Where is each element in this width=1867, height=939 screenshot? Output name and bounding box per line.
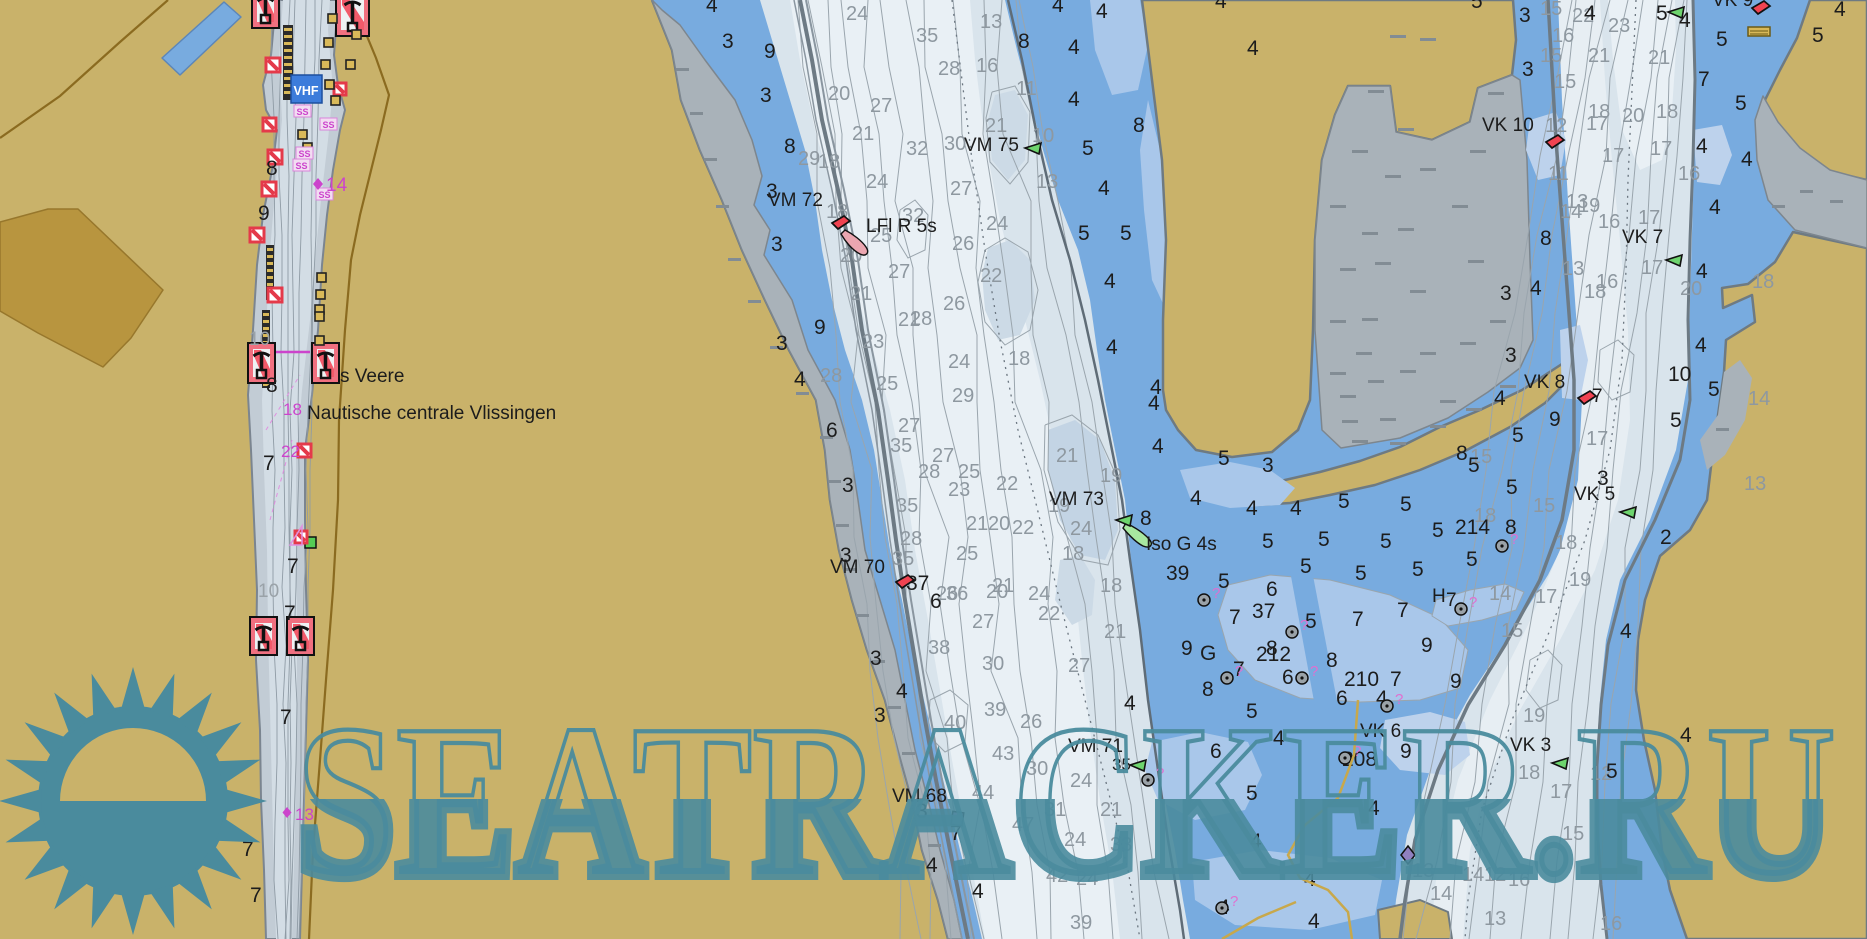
svg-text:5: 5 bbox=[1708, 378, 1720, 401]
svg-text:9: 9 bbox=[814, 316, 826, 339]
svg-text:30: 30 bbox=[982, 653, 1004, 675]
svg-text:15: 15 bbox=[1533, 495, 1555, 517]
svg-text:5: 5 bbox=[1471, 0, 1483, 13]
svg-text:8: 8 bbox=[266, 157, 278, 180]
svg-text:8: 8 bbox=[1140, 507, 1152, 530]
svg-text:4: 4 bbox=[1584, 2, 1596, 25]
svg-text:21: 21 bbox=[1056, 445, 1078, 467]
svg-text:26: 26 bbox=[943, 293, 965, 315]
svg-text:21: 21 bbox=[1648, 47, 1670, 69]
svg-text:17: 17 bbox=[1650, 138, 1672, 160]
svg-text:?: ? bbox=[1469, 594, 1477, 611]
svg-text:5: 5 bbox=[1512, 424, 1524, 447]
svg-text:27: 27 bbox=[950, 178, 972, 200]
svg-text:?: ? bbox=[1212, 585, 1220, 602]
svg-text:18: 18 bbox=[1555, 532, 1577, 554]
svg-text:4: 4 bbox=[1068, 88, 1080, 111]
svg-text:10: 10 bbox=[249, 329, 270, 350]
svg-text:5: 5 bbox=[1656, 2, 1668, 25]
svg-text:7: 7 bbox=[284, 602, 296, 625]
svg-text:212: 212 bbox=[1256, 643, 1291, 666]
svg-text:3: 3 bbox=[1519, 4, 1531, 27]
svg-text:10: 10 bbox=[258, 581, 279, 602]
svg-text:7: 7 bbox=[1397, 599, 1409, 622]
svg-text:9: 9 bbox=[1549, 408, 1561, 431]
svg-text:6: 6 bbox=[826, 419, 838, 442]
svg-text:8: 8 bbox=[1133, 114, 1145, 137]
svg-text:13: 13 bbox=[1036, 171, 1058, 193]
svg-text:20: 20 bbox=[828, 83, 850, 105]
svg-text:23: 23 bbox=[1608, 15, 1630, 37]
svg-text:22: 22 bbox=[1012, 517, 1034, 539]
svg-text:5: 5 bbox=[1400, 493, 1412, 516]
svg-text:4: 4 bbox=[1494, 387, 1506, 410]
svg-text:25: 25 bbox=[956, 543, 978, 565]
svg-text:36: 36 bbox=[946, 583, 968, 605]
svg-text:4: 4 bbox=[1247, 37, 1259, 60]
svg-text:5: 5 bbox=[1218, 447, 1230, 470]
svg-text:3: 3 bbox=[1500, 282, 1512, 305]
svg-text:17: 17 bbox=[1641, 257, 1663, 279]
svg-text:3: 3 bbox=[1522, 58, 1534, 81]
svg-text:4: 4 bbox=[1696, 135, 1708, 158]
svg-text:32: 32 bbox=[906, 138, 928, 160]
svg-text:?: ? bbox=[1310, 663, 1318, 680]
svg-text:5: 5 bbox=[1120, 222, 1132, 245]
svg-text:3: 3 bbox=[1262, 454, 1274, 477]
svg-text:10: 10 bbox=[1032, 125, 1054, 147]
svg-text:s Veere: s Veere bbox=[340, 366, 404, 387]
svg-text:7: 7 bbox=[1698, 68, 1710, 91]
svg-text:10: 10 bbox=[1668, 363, 1691, 386]
svg-text:VM 70: VM 70 bbox=[830, 557, 885, 578]
svg-text:5: 5 bbox=[1355, 562, 1367, 585]
svg-text:6: 6 bbox=[930, 590, 942, 613]
svg-text:4: 4 bbox=[1098, 177, 1110, 200]
svg-text:27: 27 bbox=[870, 95, 892, 117]
svg-text:5: 5 bbox=[1300, 555, 1312, 578]
svg-text:VHF: VHF bbox=[294, 84, 319, 98]
svg-text:3: 3 bbox=[776, 332, 788, 355]
svg-text:VM 73: VM 73 bbox=[1049, 489, 1104, 510]
svg-text:VM 75: VM 75 bbox=[964, 135, 1019, 156]
svg-text:21: 21 bbox=[992, 575, 1014, 597]
svg-text:22: 22 bbox=[281, 442, 300, 461]
svg-text:Nautische centrale Vlissingen: Nautische centrale Vlissingen bbox=[307, 403, 556, 424]
svg-text:5: 5 bbox=[1468, 454, 1480, 477]
svg-text:3: 3 bbox=[842, 474, 854, 497]
svg-text:12: 12 bbox=[1545, 115, 1567, 137]
svg-text:VK 9: VK 9 bbox=[1712, 0, 1753, 11]
svg-text:21: 21 bbox=[966, 513, 988, 535]
svg-text:?: ? bbox=[1510, 531, 1518, 548]
svg-text:14: 14 bbox=[1748, 388, 1770, 410]
svg-text:4: 4 bbox=[1068, 36, 1080, 59]
svg-text:14: 14 bbox=[326, 175, 348, 196]
svg-text:16: 16 bbox=[1552, 25, 1574, 47]
svg-text:18: 18 bbox=[1062, 543, 1084, 565]
svg-text:16: 16 bbox=[1678, 163, 1700, 185]
svg-text:28: 28 bbox=[938, 58, 960, 80]
svg-text:17: 17 bbox=[1535, 586, 1557, 608]
svg-text:VM 72: VM 72 bbox=[768, 190, 823, 211]
svg-text:VK 8: VK 8 bbox=[1524, 372, 1565, 393]
svg-text:VK 7: VK 7 bbox=[1622, 227, 1663, 248]
svg-text:19: 19 bbox=[1100, 465, 1122, 487]
svg-text:23: 23 bbox=[862, 331, 884, 353]
svg-text:22: 22 bbox=[1038, 603, 1060, 625]
svg-text:4: 4 bbox=[1696, 260, 1708, 283]
svg-text:4: 4 bbox=[1834, 0, 1846, 21]
svg-text:17: 17 bbox=[1638, 207, 1660, 229]
svg-text:18: 18 bbox=[283, 400, 302, 419]
svg-text:2: 2 bbox=[1660, 526, 1672, 549]
svg-text:7: 7 bbox=[1229, 606, 1241, 629]
svg-text:7: 7 bbox=[1352, 608, 1364, 631]
svg-text:SS: SS bbox=[322, 120, 334, 130]
svg-text:30: 30 bbox=[944, 133, 966, 155]
svg-text:9: 9 bbox=[258, 202, 270, 225]
svg-text:4: 4 bbox=[1530, 277, 1542, 300]
svg-text:35: 35 bbox=[916, 25, 938, 47]
svg-text:5: 5 bbox=[1262, 530, 1274, 553]
svg-text:5: 5 bbox=[1812, 24, 1824, 47]
svg-text:21: 21 bbox=[1104, 621, 1126, 643]
svg-text:5: 5 bbox=[1716, 28, 1728, 51]
svg-text:20: 20 bbox=[988, 513, 1010, 535]
svg-text:214: 214 bbox=[1455, 516, 1490, 539]
svg-text:28: 28 bbox=[918, 461, 940, 483]
svg-text:24: 24 bbox=[1070, 518, 1092, 540]
svg-text:24: 24 bbox=[1028, 583, 1050, 605]
svg-text:21: 21 bbox=[898, 309, 920, 331]
svg-text:5: 5 bbox=[1432, 519, 1444, 542]
svg-text:16: 16 bbox=[1598, 211, 1620, 233]
svg-text:G: G bbox=[1200, 642, 1216, 665]
svg-text:7: 7 bbox=[280, 706, 292, 729]
svg-text:24: 24 bbox=[846, 3, 868, 25]
svg-text:3: 3 bbox=[722, 30, 734, 53]
svg-text:17: 17 bbox=[1586, 428, 1608, 450]
svg-text:14: 14 bbox=[1489, 583, 1511, 605]
svg-text:24: 24 bbox=[986, 213, 1008, 235]
svg-text:18: 18 bbox=[1008, 348, 1030, 370]
svg-text:28: 28 bbox=[900, 528, 922, 550]
svg-text:39: 39 bbox=[1166, 562, 1189, 585]
svg-text:7: 7 bbox=[263, 452, 275, 475]
svg-text:35: 35 bbox=[892, 548, 914, 570]
svg-text:4: 4 bbox=[706, 0, 718, 17]
svg-text:29: 29 bbox=[952, 385, 974, 407]
svg-text:8: 8 bbox=[1456, 442, 1468, 465]
svg-text:9: 9 bbox=[1421, 634, 1433, 657]
svg-text:6: 6 bbox=[1266, 578, 1278, 601]
svg-text:21: 21 bbox=[1588, 45, 1610, 67]
svg-text:13: 13 bbox=[1562, 258, 1584, 280]
svg-text:22: 22 bbox=[980, 265, 1002, 287]
svg-text:26: 26 bbox=[952, 233, 974, 255]
svg-text:3: 3 bbox=[870, 647, 882, 670]
svg-text:SS: SS bbox=[295, 161, 307, 171]
svg-text:5: 5 bbox=[1380, 530, 1392, 553]
svg-text:16: 16 bbox=[976, 55, 998, 77]
svg-text:7: 7 bbox=[287, 555, 299, 578]
svg-text:7: 7 bbox=[1592, 386, 1603, 407]
svg-text:9: 9 bbox=[1181, 637, 1193, 660]
svg-text:15: 15 bbox=[1554, 71, 1576, 93]
svg-text:3: 3 bbox=[1505, 344, 1517, 367]
svg-text:15: 15 bbox=[1540, 45, 1562, 67]
svg-text:4: 4 bbox=[1709, 196, 1721, 219]
svg-text:8: 8 bbox=[1540, 227, 1552, 250]
svg-text:4: 4 bbox=[1741, 148, 1753, 171]
svg-text:27: 27 bbox=[898, 415, 920, 437]
svg-text:25: 25 bbox=[958, 461, 980, 483]
svg-text:4: 4 bbox=[1695, 334, 1707, 357]
svg-text:35: 35 bbox=[890, 435, 912, 457]
svg-text:7: 7 bbox=[250, 884, 262, 907]
svg-text:13: 13 bbox=[1744, 473, 1766, 495]
svg-text:27: 27 bbox=[1068, 655, 1090, 677]
svg-text:4: 4 bbox=[1246, 497, 1258, 520]
svg-text:24: 24 bbox=[948, 351, 970, 373]
svg-text:29: 29 bbox=[798, 148, 820, 170]
svg-text:4: 4 bbox=[1106, 336, 1118, 359]
svg-text:4: 4 bbox=[1215, 0, 1227, 13]
svg-text:27: 27 bbox=[972, 611, 994, 633]
svg-text:4: 4 bbox=[1096, 0, 1108, 23]
svg-text:15: 15 bbox=[1501, 620, 1523, 642]
svg-text:18: 18 bbox=[1656, 101, 1678, 123]
svg-text:8: 8 bbox=[1326, 649, 1338, 672]
svg-text:4: 4 bbox=[1190, 487, 1202, 510]
svg-text:8: 8 bbox=[1018, 30, 1030, 53]
svg-text:37: 37 bbox=[1252, 600, 1275, 623]
svg-text:4: 4 bbox=[1620, 620, 1632, 643]
svg-text:21: 21 bbox=[852, 123, 874, 145]
svg-text:4: 4 bbox=[1052, 0, 1064, 17]
svg-text:18: 18 bbox=[818, 151, 840, 173]
svg-text:17: 17 bbox=[1586, 113, 1608, 135]
svg-text:20: 20 bbox=[1622, 105, 1644, 127]
svg-text:VK 10: VK 10 bbox=[1482, 115, 1534, 136]
svg-text:17: 17 bbox=[1602, 145, 1624, 167]
svg-text:5: 5 bbox=[1506, 476, 1518, 499]
svg-text:19: 19 bbox=[1569, 569, 1591, 591]
svg-text:5: 5 bbox=[1078, 222, 1090, 245]
svg-text:SS: SS bbox=[296, 107, 308, 117]
svg-text:4: 4 bbox=[1152, 435, 1164, 458]
svg-text:5: 5 bbox=[1338, 490, 1350, 513]
svg-text:LFl R 5s: LFl R 5s bbox=[866, 216, 937, 237]
svg-text:24: 24 bbox=[866, 171, 888, 193]
svg-text:13: 13 bbox=[980, 11, 1002, 33]
svg-text:5: 5 bbox=[1318, 528, 1330, 551]
svg-text:9: 9 bbox=[764, 40, 776, 63]
svg-text:5: 5 bbox=[1670, 409, 1682, 432]
svg-text:19: 19 bbox=[1578, 195, 1600, 217]
svg-text:5: 5 bbox=[1466, 548, 1478, 571]
svg-text:4: 4 bbox=[1104, 270, 1116, 293]
svg-text:28: 28 bbox=[820, 365, 842, 387]
svg-text:38: 38 bbox=[928, 637, 950, 659]
svg-text:27: 27 bbox=[888, 261, 910, 283]
svg-text:8: 8 bbox=[784, 135, 796, 158]
svg-text:21: 21 bbox=[850, 283, 872, 305]
svg-text:4: 4 bbox=[794, 368, 806, 391]
svg-text:?: ? bbox=[1300, 617, 1308, 634]
svg-text:SS: SS bbox=[298, 149, 310, 159]
svg-text:11: 11 bbox=[1548, 163, 1569, 185]
svg-text:?: ? bbox=[1235, 663, 1243, 680]
svg-text:22: 22 bbox=[996, 473, 1018, 495]
svg-text:18: 18 bbox=[1752, 271, 1774, 293]
svg-text:5: 5 bbox=[1735, 92, 1747, 115]
svg-text:8: 8 bbox=[266, 374, 278, 397]
svg-text:18: 18 bbox=[1584, 281, 1606, 303]
svg-text:3: 3 bbox=[760, 84, 772, 107]
svg-text:25: 25 bbox=[876, 373, 898, 395]
svg-text:21: 21 bbox=[985, 115, 1007, 137]
svg-text:4: 4 bbox=[1290, 497, 1302, 520]
svg-text:Iso G 4s: Iso G 4s bbox=[1146, 534, 1217, 555]
svg-text:11: 11 bbox=[1016, 78, 1037, 100]
svg-text:15: 15 bbox=[1540, 0, 1562, 20]
svg-text:3: 3 bbox=[771, 233, 783, 256]
svg-text:5: 5 bbox=[1412, 558, 1424, 581]
svg-text:5: 5 bbox=[1082, 137, 1094, 160]
svg-text:H: H bbox=[1432, 586, 1446, 607]
svg-text:18: 18 bbox=[1100, 575, 1122, 597]
svg-text:35: 35 bbox=[896, 495, 918, 517]
svg-text:4: 4 bbox=[1148, 392, 1160, 415]
svg-text:VK 5: VK 5 bbox=[1574, 484, 1615, 505]
